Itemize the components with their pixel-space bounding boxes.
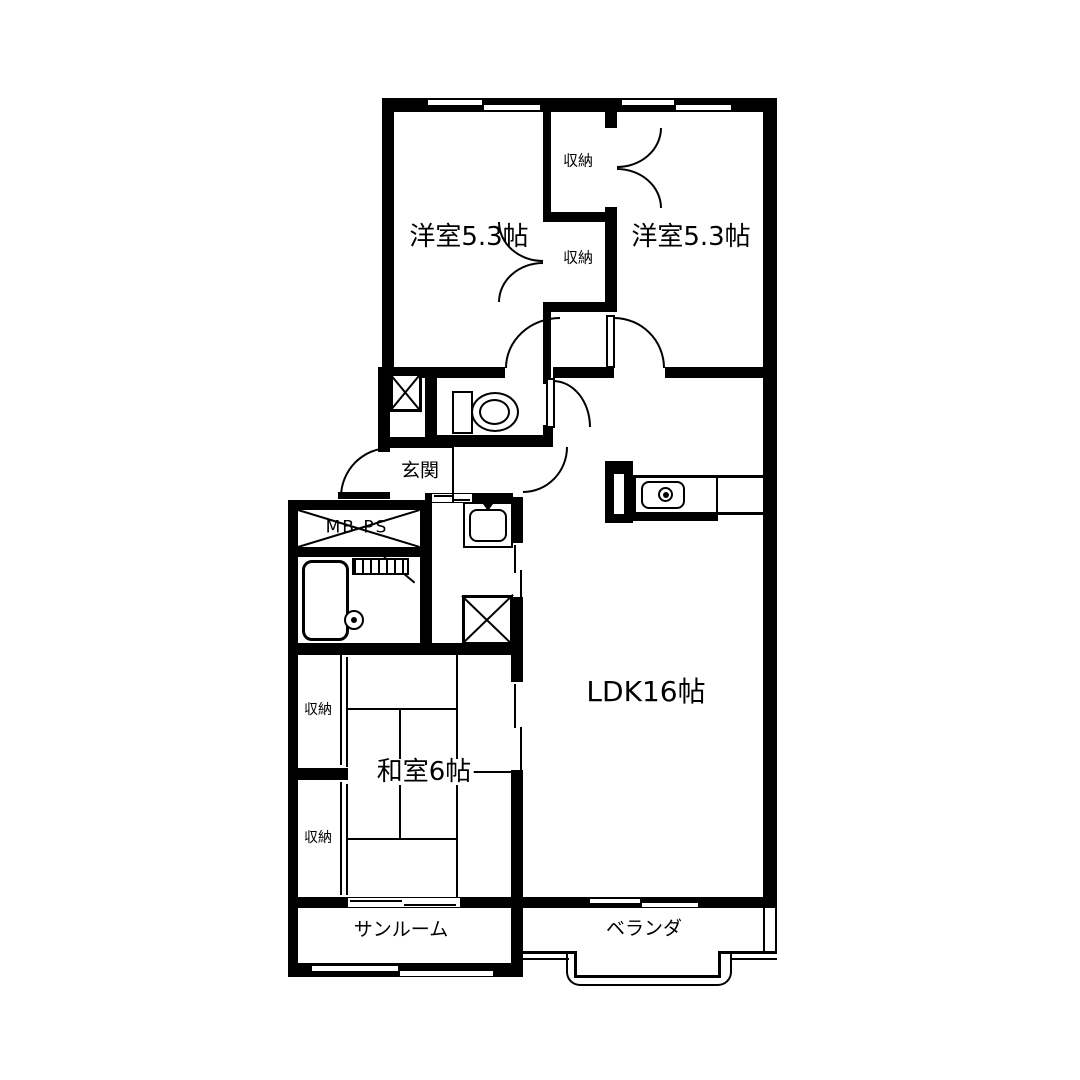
veranda-outer-rail <box>566 953 732 986</box>
closet-door-arc <box>617 168 662 208</box>
room-label-closet-top: 収納 <box>563 154 593 169</box>
room-label-veranda: ベランダ <box>606 920 682 939</box>
bedroom2-door-leaf <box>606 315 615 368</box>
entrance-door-arc <box>340 447 390 497</box>
sliding-door-panel <box>434 495 452 497</box>
window <box>642 903 698 907</box>
sliding-door-panel <box>514 684 516 728</box>
closet-door-arc <box>498 262 543 302</box>
room-label-japanese-room: 和室6帖 <box>375 759 474 785</box>
washbasin-icon <box>469 509 507 542</box>
room-label-bedroom1: 洋室5.3帖 <box>409 224 528 250</box>
room-label-entrance: 玄関 <box>401 462 439 481</box>
entrance-door-leaf <box>338 492 390 499</box>
wall <box>288 547 432 557</box>
bedroom1-door-arc <box>505 317 560 368</box>
wall <box>511 897 523 977</box>
window <box>400 971 493 976</box>
closet-sliding-door <box>340 782 342 895</box>
bath-shelf-icon <box>352 558 409 575</box>
sliding-door-panel <box>520 727 522 770</box>
closet-sliding-door <box>346 657 348 767</box>
wall <box>543 425 553 447</box>
window <box>590 899 640 903</box>
wall <box>605 207 617 312</box>
sliding-door-panel <box>350 900 402 902</box>
floor-plan: 洋室5.3帖 洋室5.3帖 収納 収納 玄関 MB PS LDK16帖 和室6帖… <box>0 0 1080 1080</box>
kitchen-counter-divider <box>716 477 718 513</box>
entrance-step-line <box>452 448 454 503</box>
wall <box>511 770 523 897</box>
wall <box>288 768 348 780</box>
bath-drain-icon <box>351 617 357 623</box>
wall <box>553 367 614 378</box>
veranda-outer-rail <box>523 958 569 960</box>
tatami-line <box>348 838 458 840</box>
wall <box>382 98 394 378</box>
sliding-door-panel <box>452 499 470 501</box>
window-sash-tick <box>398 965 400 976</box>
hall-ldk-door-arc <box>523 447 568 493</box>
room-label-closet-mid: 収納 <box>563 251 593 266</box>
sliding-door-panel <box>520 570 522 597</box>
window-sash-tick <box>482 99 484 111</box>
room-label-bedroom2: 洋室5.3帖 <box>631 224 750 250</box>
room-label-closet-left-bottom: 収納 <box>304 831 332 845</box>
window <box>622 100 674 105</box>
faucet-icon <box>483 504 493 511</box>
bedroom2-door-arc <box>614 317 665 368</box>
veranda-rail <box>775 908 777 954</box>
toilet-icon <box>479 399 510 425</box>
window <box>428 100 484 105</box>
sliding-door-panel <box>514 545 516 573</box>
kitchen-cap-slit <box>614 474 624 514</box>
window-sash-tick <box>640 898 642 907</box>
wall <box>665 367 777 378</box>
window <box>484 105 540 110</box>
wall <box>288 500 432 510</box>
tatami-line <box>348 708 458 710</box>
closet-door-arc <box>617 128 662 168</box>
window <box>676 105 731 110</box>
bathtub-icon <box>302 560 349 641</box>
room-label-closet-left-top: 収納 <box>304 703 332 717</box>
wall <box>605 98 617 128</box>
room-label-sunroom: サンルーム <box>354 921 448 940</box>
room-label-meter-box: MB PS <box>326 520 389 537</box>
room-label-ldk: LDK16帖 <box>586 678 705 706</box>
window-sash-tick <box>674 99 676 111</box>
toilet-door-leaf <box>546 378 555 428</box>
wall <box>543 302 617 312</box>
veranda-rail <box>763 908 765 954</box>
veranda-outer-rail <box>730 958 777 960</box>
sliding-door-panel <box>404 904 456 906</box>
window <box>312 966 398 971</box>
kitchen-sink-icon <box>663 492 669 498</box>
wall <box>511 437 523 447</box>
closet-sliding-door <box>340 655 342 765</box>
toilet-door-arc <box>553 380 591 427</box>
wall <box>543 212 617 222</box>
kitchen-counter-lip <box>633 515 718 521</box>
wall <box>420 500 432 655</box>
wall <box>543 98 551 222</box>
toilet-icon <box>452 391 473 434</box>
